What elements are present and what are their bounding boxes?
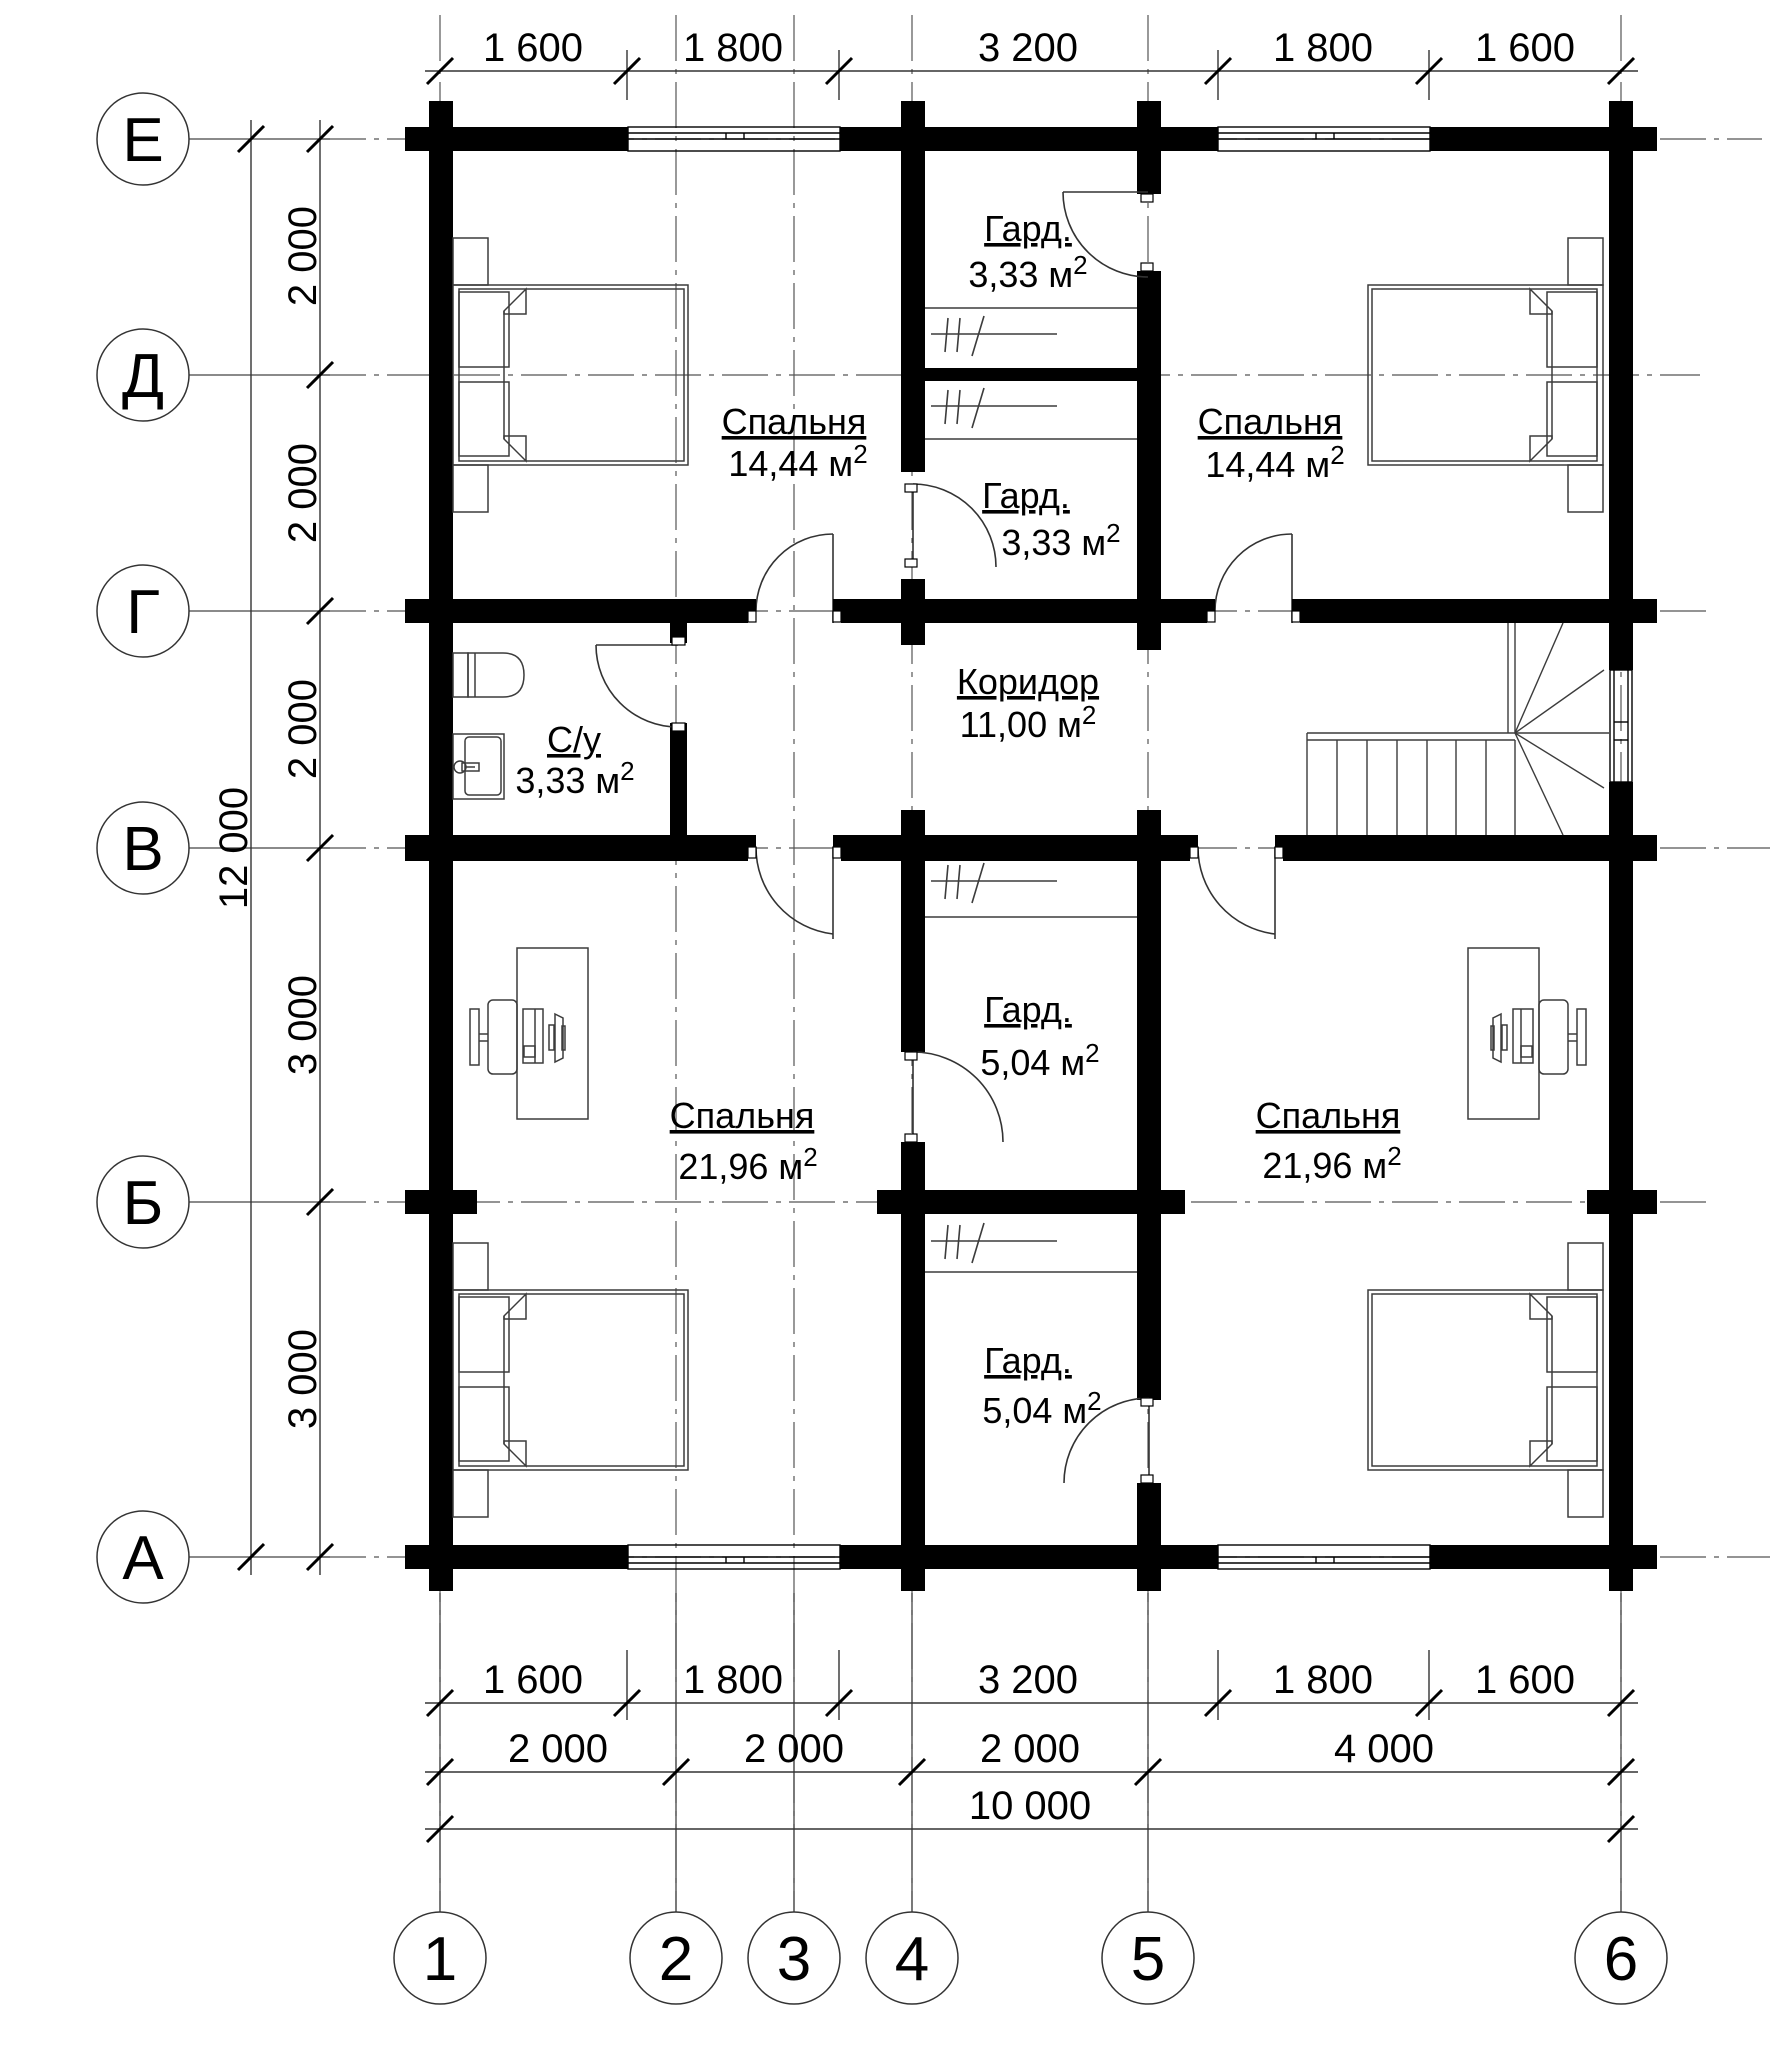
svg-text:1 600: 1 600 <box>483 26 583 70</box>
svg-text:А: А <box>122 1524 164 1593</box>
svg-text:5: 5 <box>1131 1925 1165 1994</box>
svg-text:Е: Е <box>122 106 163 175</box>
svg-text:1: 1 <box>423 1925 457 1994</box>
svg-text:14,44 м2: 14,44 м2 <box>728 439 867 484</box>
svg-text:Спальня: Спальня <box>1256 1095 1401 1136</box>
svg-text:1 600: 1 600 <box>1475 26 1575 70</box>
svg-text:3,33 м2: 3,33 м2 <box>1001 518 1120 563</box>
svg-text:Г: Г <box>126 578 160 647</box>
svg-text:10 000: 10 000 <box>969 1784 1091 1828</box>
svg-text:2 000: 2 000 <box>281 679 325 779</box>
svg-text:3,33 м2: 3,33 м2 <box>515 756 634 801</box>
svg-text:3 200: 3 200 <box>978 26 1078 70</box>
svg-text:2 000: 2 000 <box>744 1727 844 1771</box>
svg-text:Спальня: Спальня <box>722 401 867 442</box>
svg-text:Коридор: Коридор <box>957 661 1099 702</box>
svg-text:3: 3 <box>777 1925 811 1994</box>
svg-text:Д: Д <box>122 342 164 411</box>
svg-text:2 000: 2 000 <box>508 1727 608 1771</box>
svg-text:Гард.: Гард. <box>984 989 1072 1030</box>
svg-text:Гард.: Гард. <box>984 208 1072 249</box>
svg-text:3,33 м2: 3,33 м2 <box>968 250 1087 295</box>
svg-text:1 800: 1 800 <box>683 26 783 70</box>
svg-text:1 800: 1 800 <box>683 1658 783 1702</box>
svg-text:3 200: 3 200 <box>978 1658 1078 1702</box>
svg-text:11,00 м2: 11,00 м2 <box>960 700 1097 745</box>
svg-text:5,04 м2: 5,04 м2 <box>982 1386 1101 1431</box>
svg-text:2 000: 2 000 <box>980 1727 1080 1771</box>
svg-text:3 000: 3 000 <box>281 1329 325 1429</box>
svg-text:2 000: 2 000 <box>281 443 325 543</box>
svg-text:12 000: 12 000 <box>212 787 256 909</box>
svg-text:Гард.: Гард. <box>984 1340 1072 1381</box>
svg-text:2 000: 2 000 <box>281 206 325 306</box>
svg-text:Гард.: Гард. <box>982 475 1070 516</box>
svg-text:1 800: 1 800 <box>1273 26 1373 70</box>
svg-text:4 000: 4 000 <box>1334 1727 1434 1771</box>
svg-text:С/у: С/у <box>547 719 601 760</box>
svg-text:21,96 м2: 21,96 м2 <box>678 1142 817 1187</box>
svg-text:Спальня: Спальня <box>670 1095 815 1136</box>
svg-text:5,04 м2: 5,04 м2 <box>980 1038 1099 1083</box>
svg-text:21,96 м2: 21,96 м2 <box>1262 1141 1401 1186</box>
svg-text:2: 2 <box>659 1925 693 1994</box>
svg-text:1 600: 1 600 <box>483 1658 583 1702</box>
svg-text:6: 6 <box>1604 1925 1638 1994</box>
svg-text:14,44 м2: 14,44 м2 <box>1205 440 1344 485</box>
svg-text:В: В <box>122 815 163 884</box>
svg-text:3 000: 3 000 <box>281 975 325 1075</box>
svg-text:1 600: 1 600 <box>1475 1658 1575 1702</box>
svg-text:1 800: 1 800 <box>1273 1658 1373 1702</box>
svg-text:Спальня: Спальня <box>1198 401 1343 442</box>
svg-text:4: 4 <box>895 1925 929 1994</box>
svg-text:Б: Б <box>123 1169 164 1238</box>
